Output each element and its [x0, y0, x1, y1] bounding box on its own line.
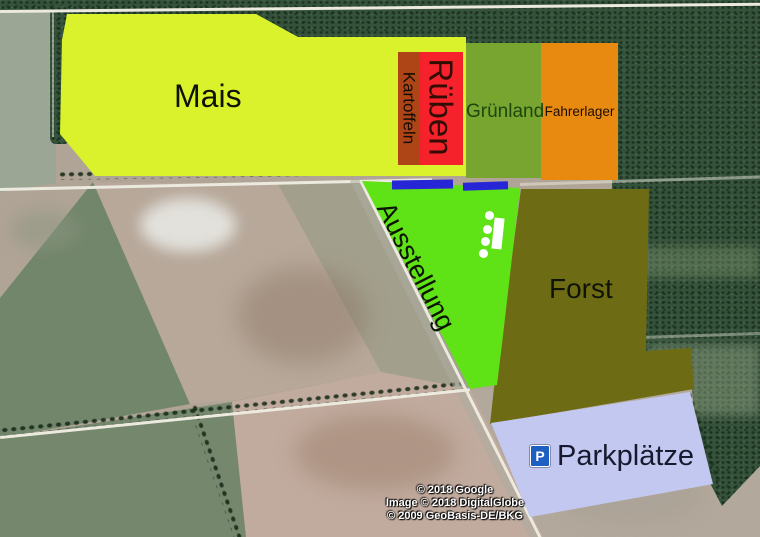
exhibition-building-marker [481, 237, 490, 246]
region-kartoffeln-label: Kartoffeln [401, 72, 418, 144]
exhibition-building-marker [483, 225, 492, 234]
exhibition-building-marker [479, 249, 488, 258]
map-canvas[interactable]: Mais Kartoffeln Rüben Grünland Fahrerlag… [0, 0, 760, 537]
region-parkplaetze-label: Parkplätze [557, 442, 694, 471]
parking-icon: P [530, 445, 550, 467]
region-forst-label: Forst [549, 275, 613, 303]
region-rueben-label: Rüben [425, 58, 458, 155]
attribution-line: © 2018 Google [345, 484, 565, 497]
field-boundary-line [52, 12, 54, 137]
soil-patch-brown [238, 268, 368, 363]
region-mais-label: Mais [174, 80, 242, 112]
soil-patch-light [140, 198, 236, 252]
exhibition-building-marker [485, 211, 494, 220]
attribution-line: © 2009 GeoBasis-DE/BKG [345, 510, 565, 523]
attribution-line: Image © 2018 DigitalGlobe [345, 497, 565, 510]
region-fahrerlager-label: Fahrerlager [541, 105, 618, 119]
blue-lane-bar [392, 179, 453, 189]
parking-icon-glyph: P [535, 448, 544, 464]
region-gruenland-label: Grünland [466, 102, 541, 121]
soil-patch-grey [10, 210, 80, 250]
map-attribution: © 2018 Google Image © 2018 DigitalGlobe … [345, 484, 565, 523]
blue-lane-bar [463, 181, 508, 191]
soil-patch-brown [295, 415, 455, 490]
